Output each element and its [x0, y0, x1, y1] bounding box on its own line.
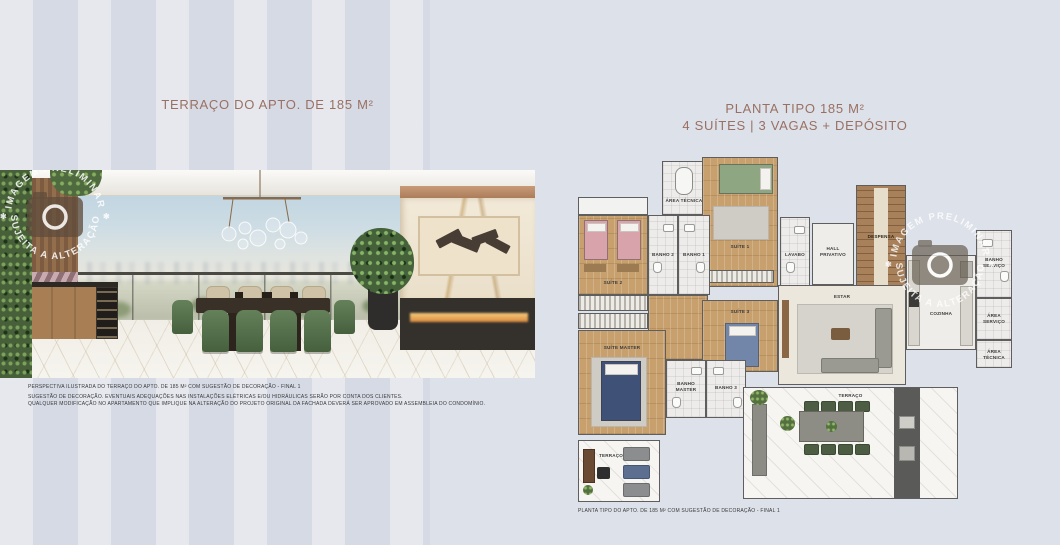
water-heater	[675, 167, 693, 195]
photo-caption-3: QUALQUER MODIFICAÇÃO NO APARTAMENTO QUE …	[28, 401, 548, 408]
plan-title-line2: 4 SUÍTES | 3 VAGAS + DEPÓSITO	[578, 117, 1012, 134]
toilet	[733, 397, 742, 408]
pillow	[587, 223, 606, 232]
sofa	[821, 358, 879, 373]
grill	[899, 416, 915, 429]
svg-text:✱: ✱	[885, 260, 892, 269]
terrace-chair	[821, 444, 836, 455]
terrace-chair	[838, 444, 853, 455]
photo-caption-1: PERSPECTIVA ILUSTRADA DO TERRAÇO DO APTO…	[28, 384, 528, 391]
closet-wardrobe	[578, 295, 648, 311]
terrace-sideboard	[752, 404, 767, 476]
desk	[617, 264, 639, 272]
room-banho-master: BANHO MASTER	[666, 360, 706, 418]
room-banho-1: BANHO 1	[678, 215, 710, 295]
dining-chair-green	[202, 310, 229, 352]
bed	[617, 220, 641, 260]
floor-plan: ÁREA TÉCNICA SUÍTE 1 BANHO 2 BANHO 1 SUÍ…	[578, 155, 1012, 502]
lounge-chair	[623, 447, 650, 461]
toilet	[653, 262, 662, 273]
dining-chair-green	[270, 310, 297, 352]
bed	[584, 220, 608, 260]
camera-icon	[27, 197, 83, 237]
room-area-tecnica-right: ÁREA TÉCNICA	[976, 340, 1012, 368]
plan-title-line1: PLANTA TIPO 185 M²	[578, 100, 1012, 117]
room-banho-3: BANHO 3	[706, 360, 746, 418]
coffee-table	[831, 328, 850, 340]
svg-text:✱: ✱	[0, 212, 7, 221]
armchair	[597, 467, 610, 479]
room-area-tecnica-top: ÁREA TÉCNICA	[662, 161, 706, 215]
sink	[691, 367, 702, 375]
room-suite-2: SUÍTE 2	[578, 215, 648, 295]
potted-plant	[350, 228, 414, 294]
photo-caption-2: SUGESTÃO DE DECORAÇÃO. EVENTUAIS ADEQUAÇ…	[28, 394, 548, 401]
pillow	[729, 326, 756, 336]
preliminary-image-watermark: IMAGEM PRELIMINAR SUJEITA A ALTERAÇÃO ✱ …	[0, 170, 120, 280]
fireplace-flame	[410, 313, 528, 322]
room-hall-privativo: HALL PRIVATIVO	[812, 223, 854, 285]
dining-chair-green	[304, 310, 331, 352]
sink	[663, 224, 674, 232]
dining-chair-green	[334, 300, 355, 334]
terrace-render-photo: IMAGEM PRELIMINAR SUJEITA A ALTERAÇÃO ✱ …	[0, 170, 535, 378]
sink	[684, 224, 695, 232]
room-terraco-small: TERRAÇO	[578, 440, 660, 502]
preliminary-image-watermark: IMAGEM PRELIMINAR SUJEITA A ALTERAÇÃO ✱ …	[875, 198, 1005, 328]
lounge-chair	[623, 465, 650, 479]
rug	[713, 206, 769, 240]
wood-cabinets	[30, 287, 96, 339]
room-terraco-large: TERRAÇO	[743, 387, 958, 499]
plan-title: PLANTA TIPO 185 M² 4 SUÍTES | 3 VAGAS + …	[578, 100, 1012, 134]
sink	[794, 226, 805, 234]
dining-chair-green	[172, 300, 193, 334]
plan-caption: PLANTA TIPO DO APTO. DE 185 M² COM SUGES…	[578, 508, 998, 515]
abstract-art-piece	[485, 235, 510, 254]
left-section-title: TERRAÇO DO APTO. DE 185 M²	[0, 97, 535, 112]
bed	[719, 164, 773, 194]
svg-text:✱: ✱	[988, 260, 995, 269]
plant	[583, 485, 593, 495]
tv-panel	[782, 300, 789, 358]
counter-top	[30, 282, 118, 287]
room-lavabo: LAVABO	[780, 217, 810, 293]
wardrobe	[705, 270, 774, 283]
plant	[750, 390, 768, 405]
terrace-chair	[804, 444, 819, 455]
counter-sink	[899, 446, 915, 461]
pillow	[605, 364, 638, 375]
linear-fireplace	[400, 298, 535, 350]
toilet	[672, 397, 681, 408]
room-suite-master: SUÍTE MASTER	[578, 330, 666, 435]
console	[583, 449, 595, 483]
plant	[780, 416, 795, 431]
bed	[601, 361, 641, 421]
sink	[713, 367, 724, 375]
pillow	[620, 223, 639, 232]
pillow	[760, 168, 771, 190]
svg-text:✱: ✱	[103, 212, 110, 221]
lounge-chair	[623, 483, 650, 497]
toilet	[786, 262, 795, 273]
closet-wardrobe	[578, 313, 648, 329]
art-panel	[418, 216, 520, 276]
plan-ledge	[578, 197, 648, 215]
pendant-light	[185, 170, 335, 270]
terrace-grill-wall	[894, 388, 920, 498]
dining-chair-green	[236, 310, 263, 352]
desk	[584, 264, 606, 272]
wine-fridge	[96, 287, 118, 339]
room-suite-1: SUÍTE 1	[702, 157, 778, 287]
table-centerpiece	[826, 421, 837, 432]
camera-icon	[912, 245, 968, 285]
terrace-chair	[855, 444, 870, 455]
room-banho-2: BANHO 2	[648, 215, 678, 295]
toilet	[696, 262, 705, 273]
